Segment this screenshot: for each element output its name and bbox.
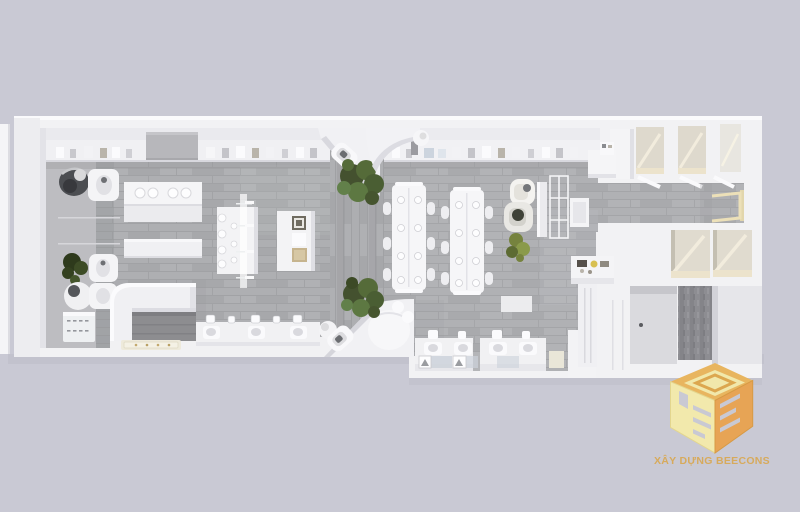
svg-text:XÂY DỰNG BEECONS: XÂY DỰNG BEECONS	[654, 454, 770, 467]
